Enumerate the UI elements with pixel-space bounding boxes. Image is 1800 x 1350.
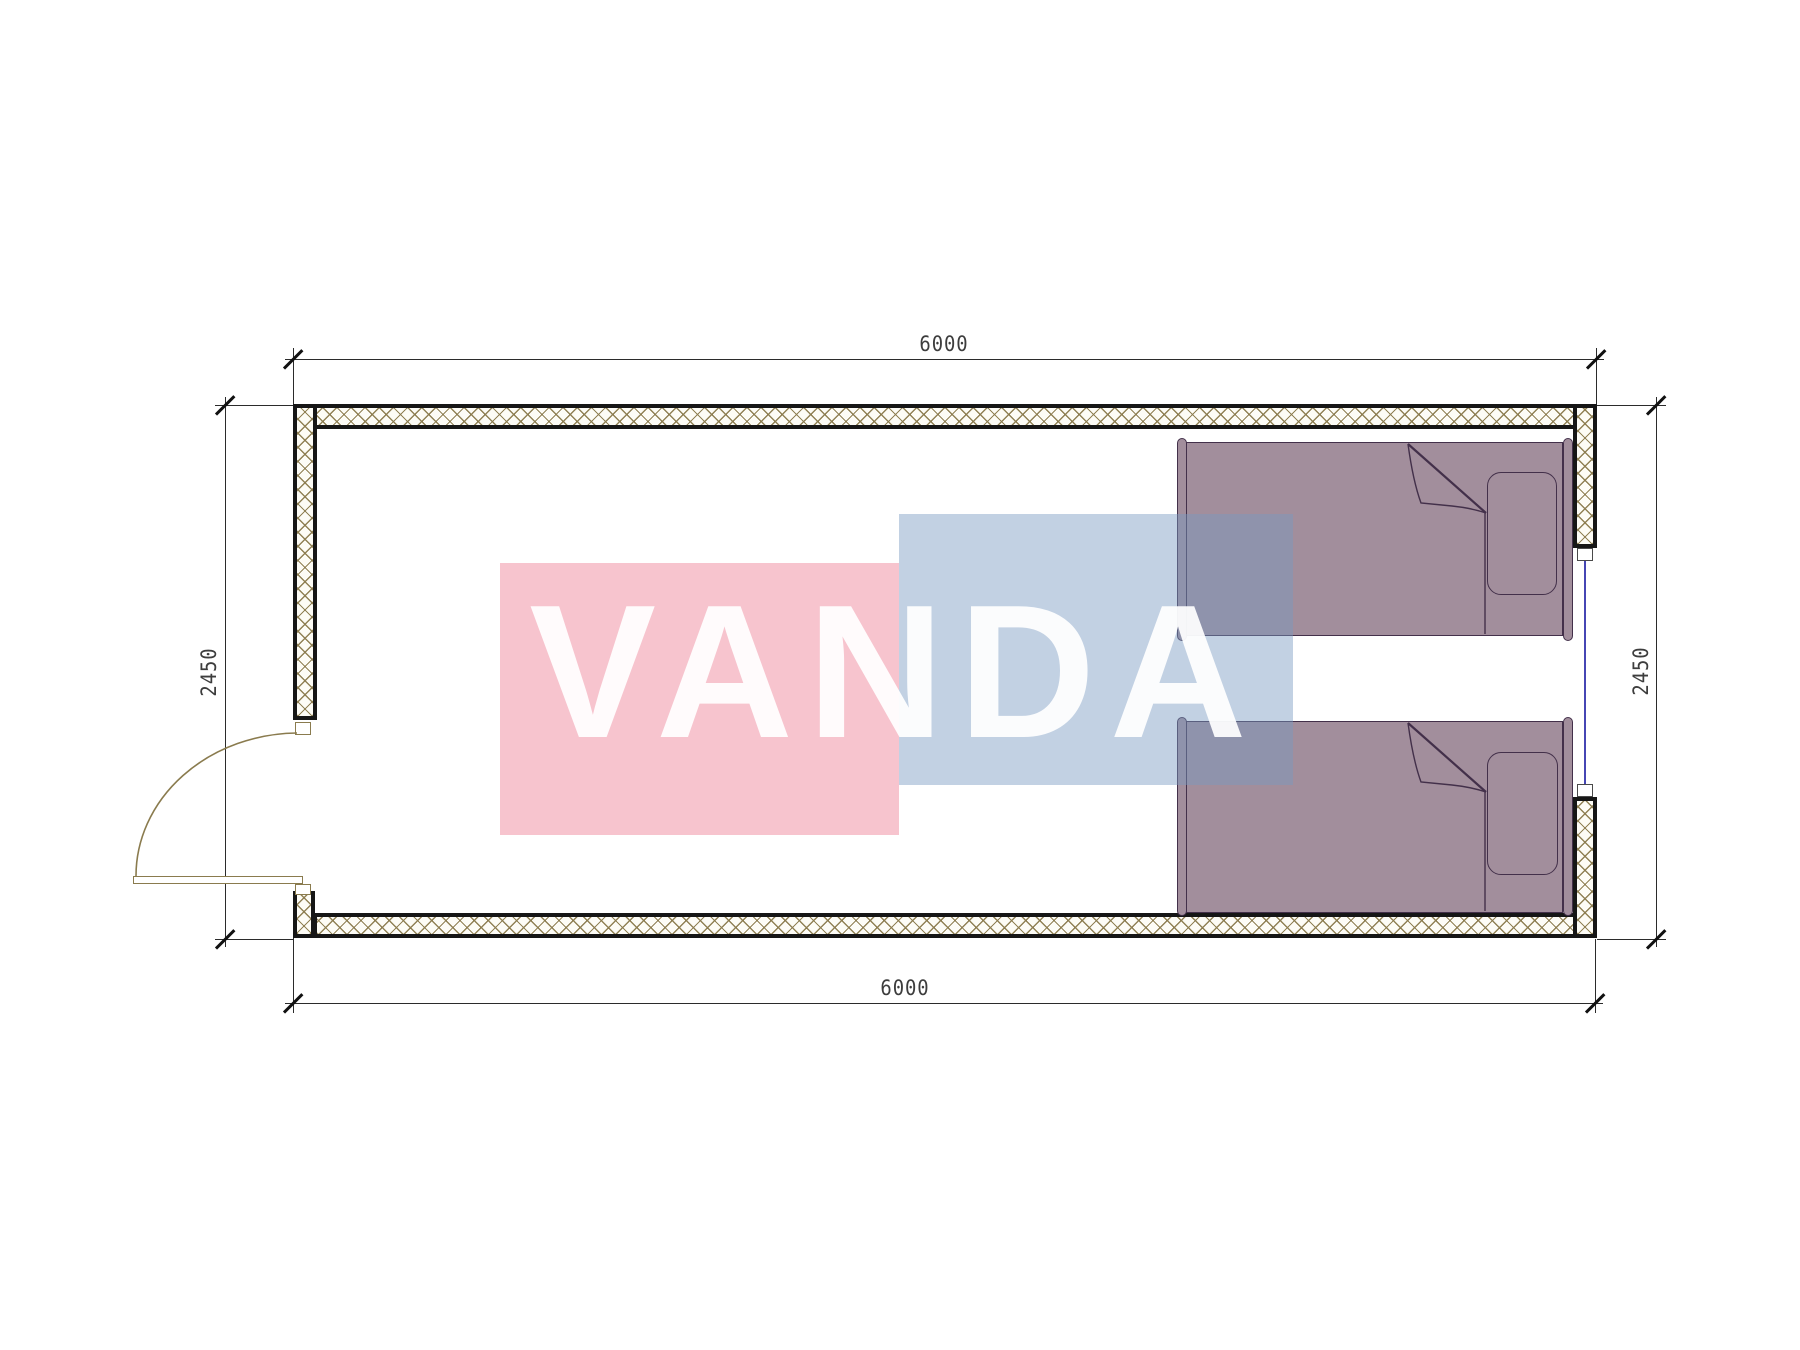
wall-left [293, 404, 317, 720]
dim-line-bottom [285, 1003, 1603, 1004]
floor-plan-drawing: 6000 6000 2450 2450 [0, 0, 1800, 1350]
dim-label-left: 2450 [198, 618, 220, 726]
wall-right-lower [1573, 797, 1597, 938]
bed-top-headboard [1563, 438, 1573, 641]
wall-right-upper [1573, 404, 1597, 548]
door-leaf [133, 876, 303, 884]
watermark-logo-text: VANDA [529, 577, 1260, 767]
dim-label-bottom: 6000 [851, 977, 959, 999]
window-glass [1584, 561, 1586, 784]
door-jamb-top [295, 722, 311, 735]
bed-top-pillow [1487, 472, 1557, 595]
bed-bottom-pillow [1487, 752, 1558, 875]
door-jamb-bottom [295, 884, 311, 895]
window-frame-bottom [1577, 784, 1593, 797]
dim-label-top: 6000 [890, 333, 998, 355]
wall-door-step [293, 891, 315, 938]
wall-bottom [313, 913, 1597, 938]
dim-label-right: 2450 [1630, 617, 1652, 725]
dim-line-right [1656, 397, 1657, 947]
bed-bottom-headboard [1563, 717, 1573, 916]
wall-top [293, 404, 1597, 429]
door-swing-arc [136, 733, 297, 876]
dim-line-top [285, 359, 1604, 360]
dim-line-left [225, 397, 226, 947]
window-frame-top [1577, 548, 1593, 561]
